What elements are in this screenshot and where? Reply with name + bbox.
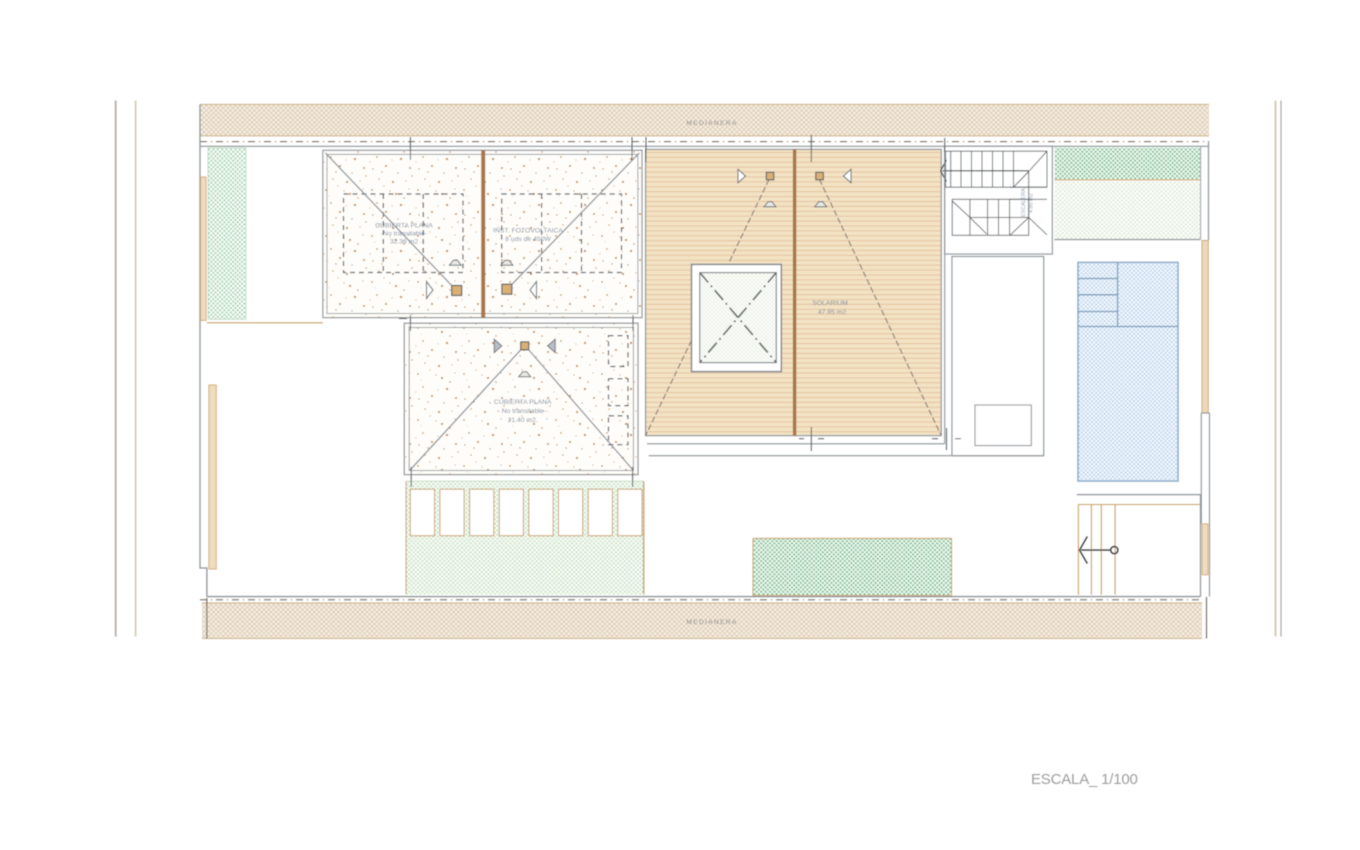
svg-text:INST. FOTOVOLTAICA: INST. FOTOVOLTAICA	[493, 228, 563, 235]
svg-text:MEDIANERA: MEDIANERA	[686, 619, 737, 626]
svg-text:4.85 m2: 4.85 m2	[1029, 194, 1035, 213]
svg-text:CUBIERTA PLANA: CUBIERTA PLANA	[375, 223, 433, 230]
svg-text:47.95 m2: 47.95 m2	[818, 309, 847, 316]
svg-text:MEDIANERA: MEDIANERA	[686, 120, 737, 127]
svg-text:ESCALA_ 1/100: ESCALA_ 1/100	[1031, 771, 1138, 788]
svg-text:SOLARIUM: SOLARIUM	[812, 300, 848, 307]
svg-text:32.36 m2: 32.36 m2	[390, 239, 419, 246]
svg-text:8 uds de 450W: 8 uds de 450W	[505, 236, 551, 243]
svg-text:ESCALERA: ESCALERA	[1021, 188, 1027, 217]
svg-text:- No transitable -: - No transitable -	[498, 408, 548, 415]
svg-text:-No transitable-: -No transitable-	[381, 231, 427, 238]
svg-text:21.40 m2.: 21.40 m2.	[508, 417, 538, 424]
svg-text:CUBIERTA PLANA: CUBIERTA PLANA	[494, 399, 552, 406]
